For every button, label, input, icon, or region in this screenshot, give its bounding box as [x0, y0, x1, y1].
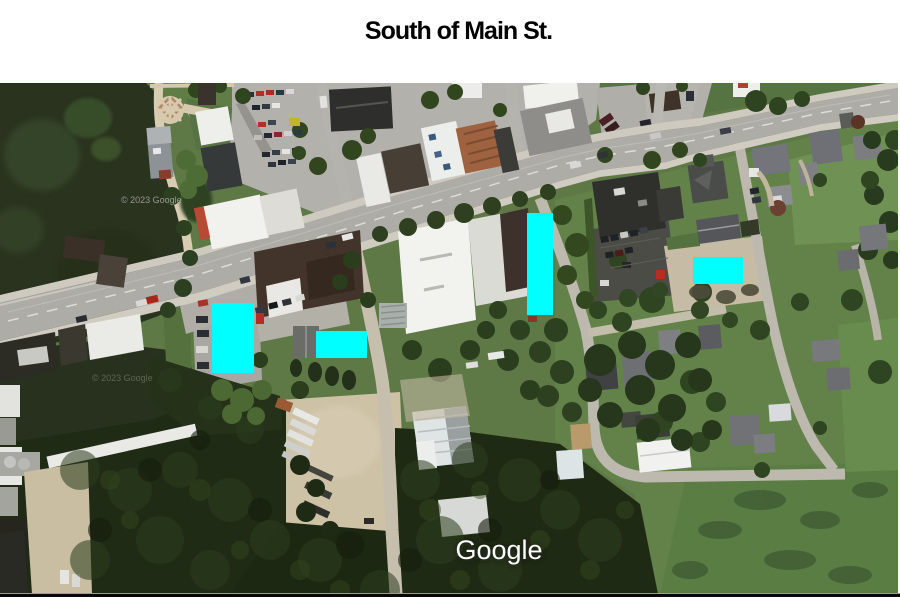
- svg-text:© 2023 Google: © 2023 Google: [121, 195, 182, 205]
- svg-text:Google: Google: [455, 535, 542, 565]
- svg-text:© 2023 Google: © 2023 Google: [92, 373, 153, 383]
